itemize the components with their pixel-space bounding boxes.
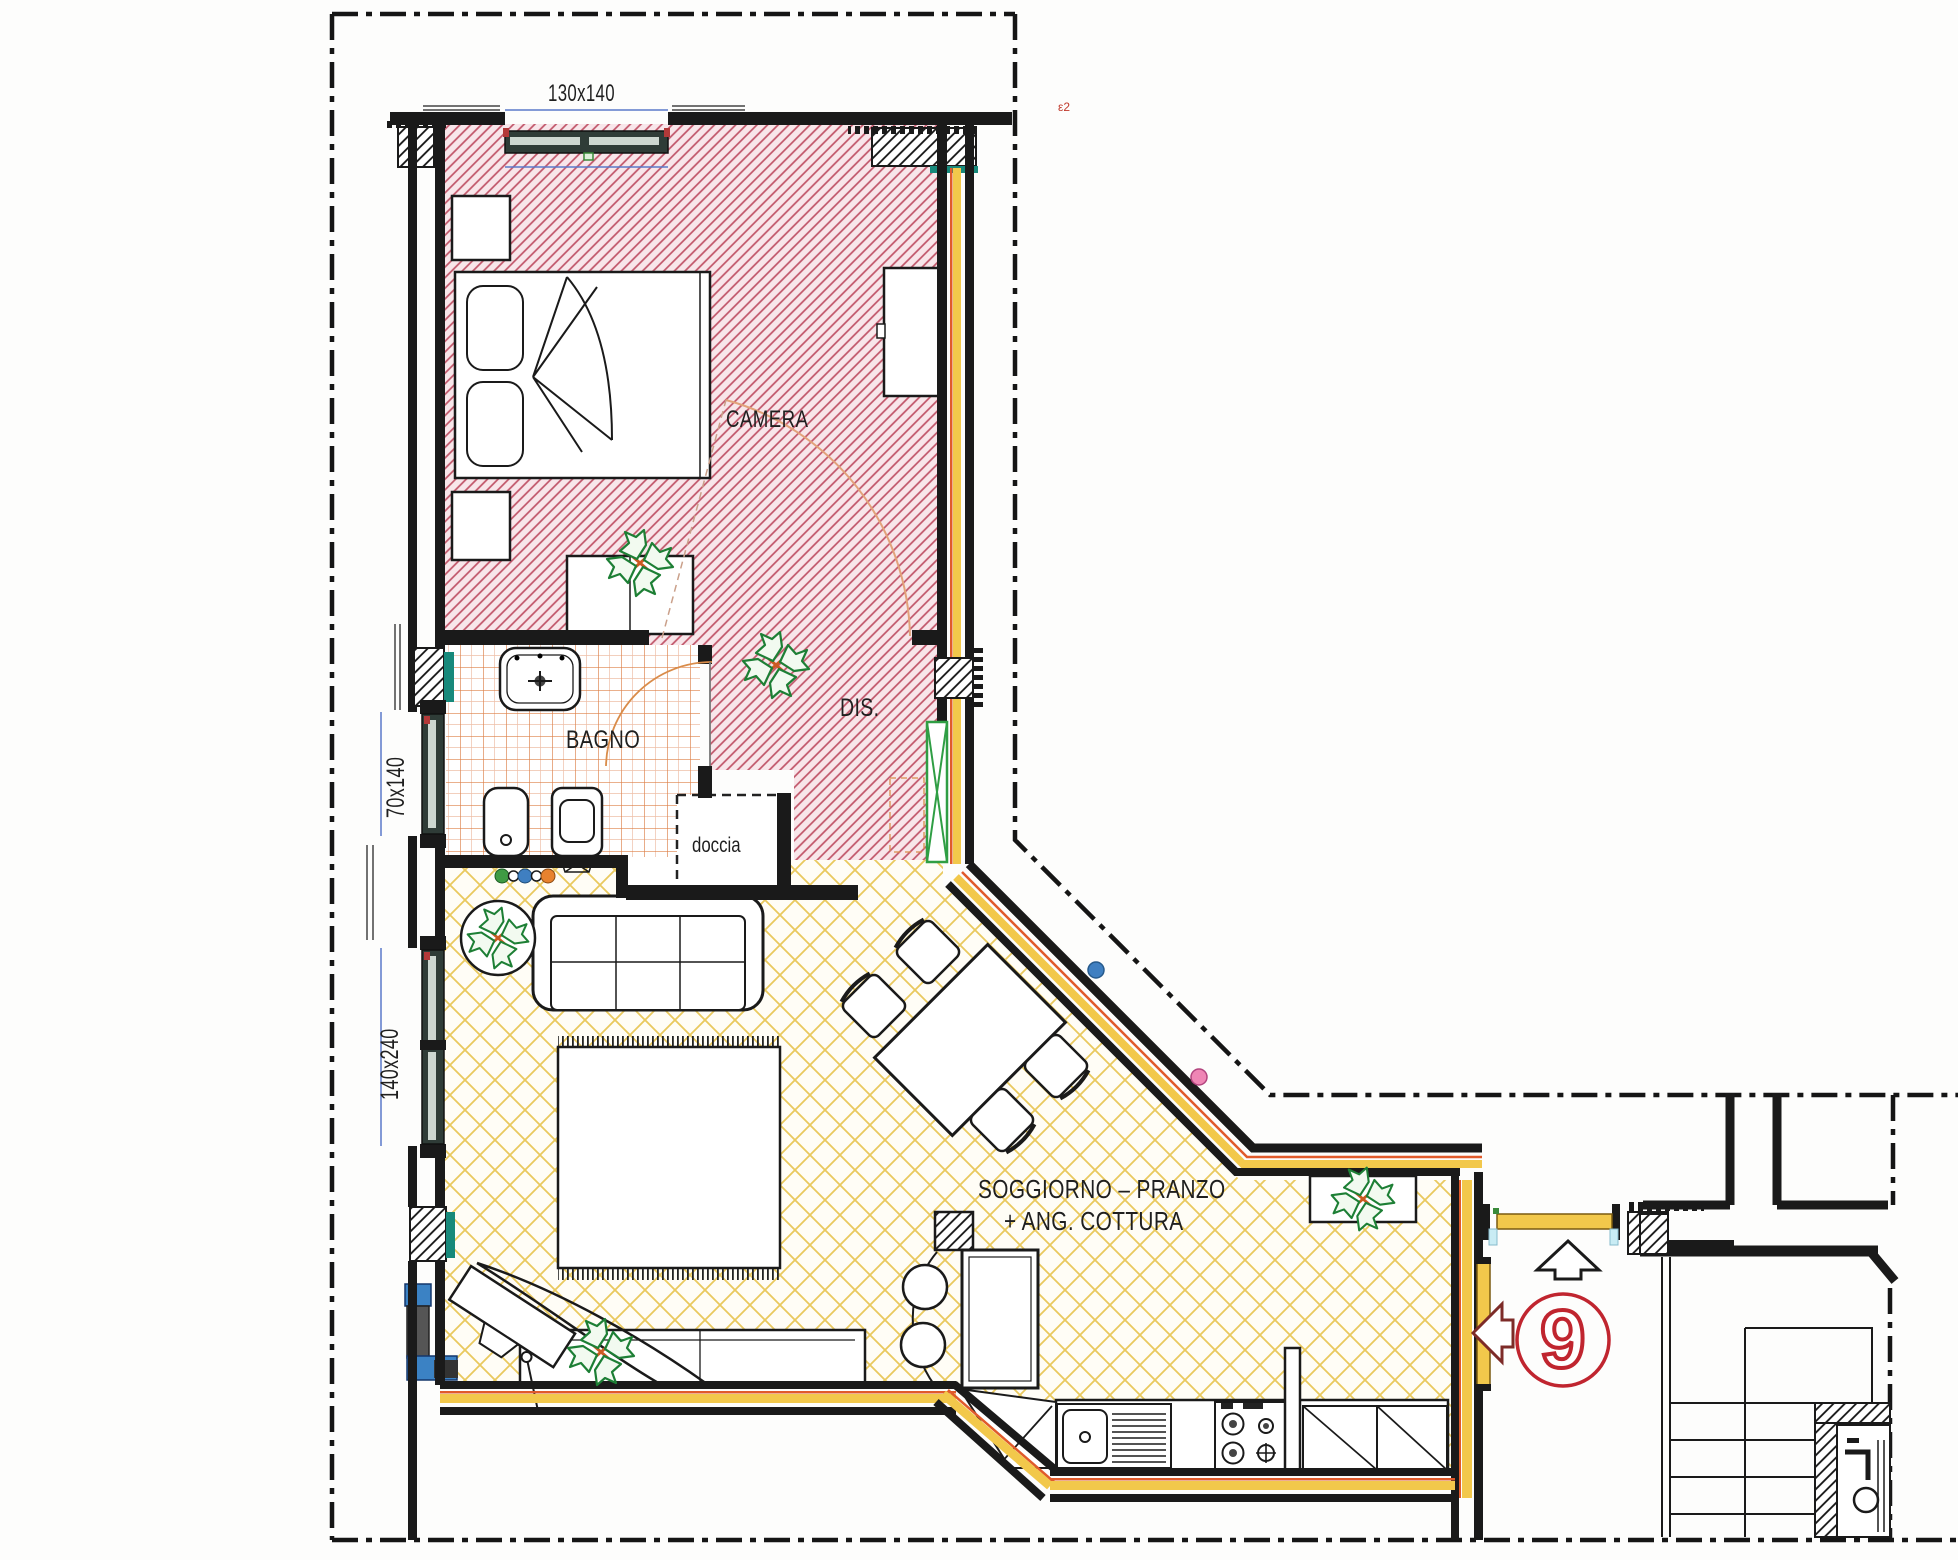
entry-up-arrow [1537,1241,1599,1279]
room-label-dis: DIS. [840,694,879,723]
room-label-camera: CAMERA [726,406,808,434]
bidet [484,788,528,856]
valve-dots [495,869,555,883]
sink [1057,1404,1171,1468]
hob [1215,1402,1293,1470]
stool [903,1265,947,1309]
room-label-bagno: BAGNO [566,726,640,755]
dimension-label-top-window: 130x140 [548,80,615,108]
dimension-label-living-window: 140x240 [376,1028,405,1100]
pillow [467,382,523,466]
nightstand [452,196,510,260]
room-label-soggiorno-line1: SOGGIORNO – PRANZO [978,1174,1226,1205]
unit-number: 9 [1513,1292,1613,1388]
bed [455,272,710,478]
radiator [927,722,947,862]
dimension-label-bagno-window: 70x140 [382,757,411,818]
sofa [533,896,763,1010]
label-shower: doccia [692,834,741,858]
floor-plan: 130x140 CAMERA BAGNO doccia DIS. 70x140 … [0,0,1958,1560]
plan-drawing [0,0,1958,1560]
pillow [467,286,523,370]
stairwell [1640,1093,1895,1537]
wardrobe [877,268,942,396]
rect-planter [1310,1168,1416,1231]
corner-annotation: ε2 [1058,100,1070,114]
blue-dot-marker [1088,962,1104,978]
floor-patch [624,855,680,887]
side-panel [1285,1348,1300,1470]
stool [901,1323,945,1367]
rug [558,1036,780,1280]
round-planter [461,901,535,975]
nightstand [452,492,510,560]
window-left-140x240 [367,845,446,1158]
washbasin [500,648,580,710]
pink-dot-marker [1191,1069,1207,1085]
room-label-soggiorno-line2: + ANG. COTTURA [1004,1206,1184,1237]
elevator [1837,1425,1890,1537]
